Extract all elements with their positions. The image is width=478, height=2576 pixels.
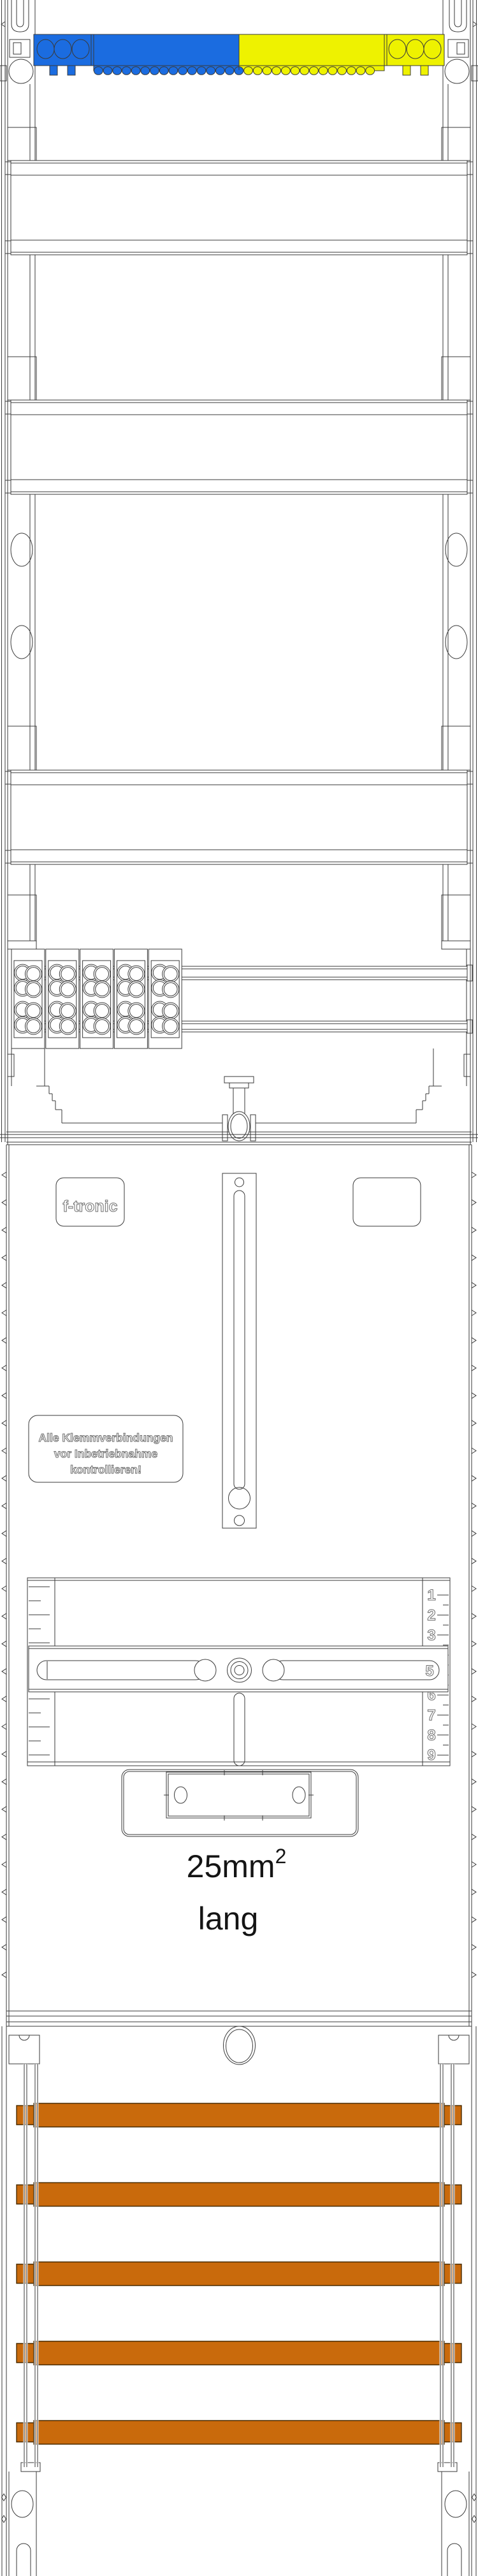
terminal-module — [11, 949, 45, 1048]
mounting-plate — [122, 1770, 358, 1836]
distribution-terminal-cluster — [11, 949, 182, 1048]
cable-spec-value: 25mm2 — [187, 1845, 287, 1884]
terminal-module — [46, 949, 79, 1048]
terminal-module — [148, 949, 182, 1048]
warning-line-2: vor Inbetriebnahme — [54, 1447, 158, 1460]
clamp-slider: 5 — [29, 1646, 448, 1692]
meter-cabinet-technical-drawing: f-tronicAlle Klemmverbindungenvor Inbetr… — [0, 0, 478, 2576]
terminal-module — [114, 949, 147, 1048]
warning-line-1: Alle Klemmverbindungen — [38, 1431, 173, 1444]
slider-scale-number: 5 — [425, 1663, 433, 1680]
cabinet-drawing-svg: f-tronicAlle Klemmverbindungenvor Inbetr… — [0, 0, 478, 2576]
cross-rail-3 — [5, 770, 473, 864]
cable-spec-line2: lang — [198, 1901, 259, 1936]
pe-terminal-block — [384, 34, 444, 75]
cable-clamp-assembly: 123467895 — [27, 1578, 450, 1766]
fixing-screw — [222, 1077, 256, 1141]
blank-plate — [353, 1178, 421, 1226]
cross-rail-1 — [5, 161, 473, 255]
busbar — [17, 2421, 461, 2444]
cross-rail-2 — [5, 400, 473, 494]
brand-logo-text: f-tronic — [62, 1198, 117, 1215]
busbar-section — [17, 2064, 461, 2467]
neutral-terminal-block — [34, 34, 94, 75]
busbar — [17, 2262, 461, 2286]
scale-number-2: 2 — [427, 1606, 435, 1624]
warning-label: Alle Klemmverbindungenvor Inbetriebnahme… — [29, 1415, 183, 1482]
warning-line-3: kontrollieren! — [70, 1463, 141, 1476]
brand-logo-plate: f-tronic — [56, 1178, 124, 1226]
bottom-notch — [224, 2026, 256, 2064]
drawing-root: f-tronicAlle Klemmverbindungenvor Inbetr… — [0, 0, 478, 2576]
top-terminal-strip — [34, 34, 444, 75]
scale-number-7: 7 — [427, 1707, 435, 1724]
cable-spec-text: 25mm2lang — [187, 1845, 287, 1936]
terminal-module — [80, 949, 113, 1048]
scale-number-9: 9 — [427, 1747, 435, 1764]
busbar — [17, 2342, 461, 2365]
central-slotted-bar — [222, 1173, 256, 1528]
scale-number-3: 3 — [427, 1627, 435, 1644]
meter-panel: f-tronicAlle Klemmverbindungenvor Inbetr… — [6, 1173, 472, 2064]
scale-number-1: 1 — [427, 1587, 435, 1604]
busbar — [17, 2183, 461, 2207]
busbar — [17, 2103, 461, 2127]
scale-number-8: 8 — [427, 1727, 435, 1744]
cabinet-seam — [0, 1077, 478, 1145]
